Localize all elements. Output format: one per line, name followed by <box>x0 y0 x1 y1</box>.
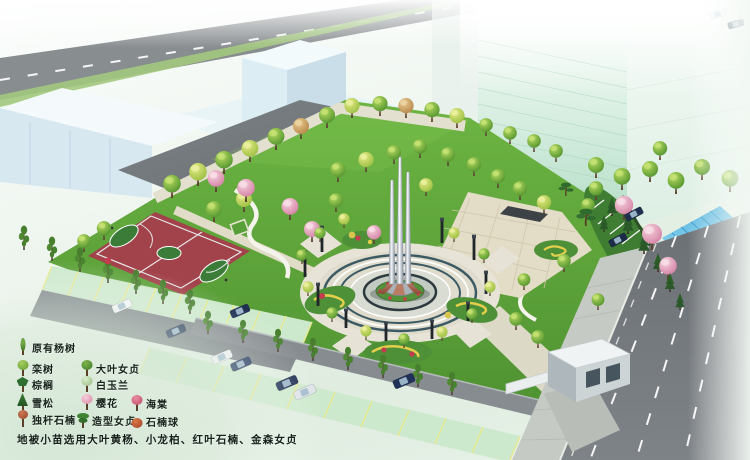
landscape-plan-rendering: 原有杨树 栾树 大叶女贞 棕榈 白玉兰 雪松 樱花 海棠 独杆石楠 造型女贞 石… <box>0 0 750 460</box>
scene-svg <box>0 0 750 460</box>
